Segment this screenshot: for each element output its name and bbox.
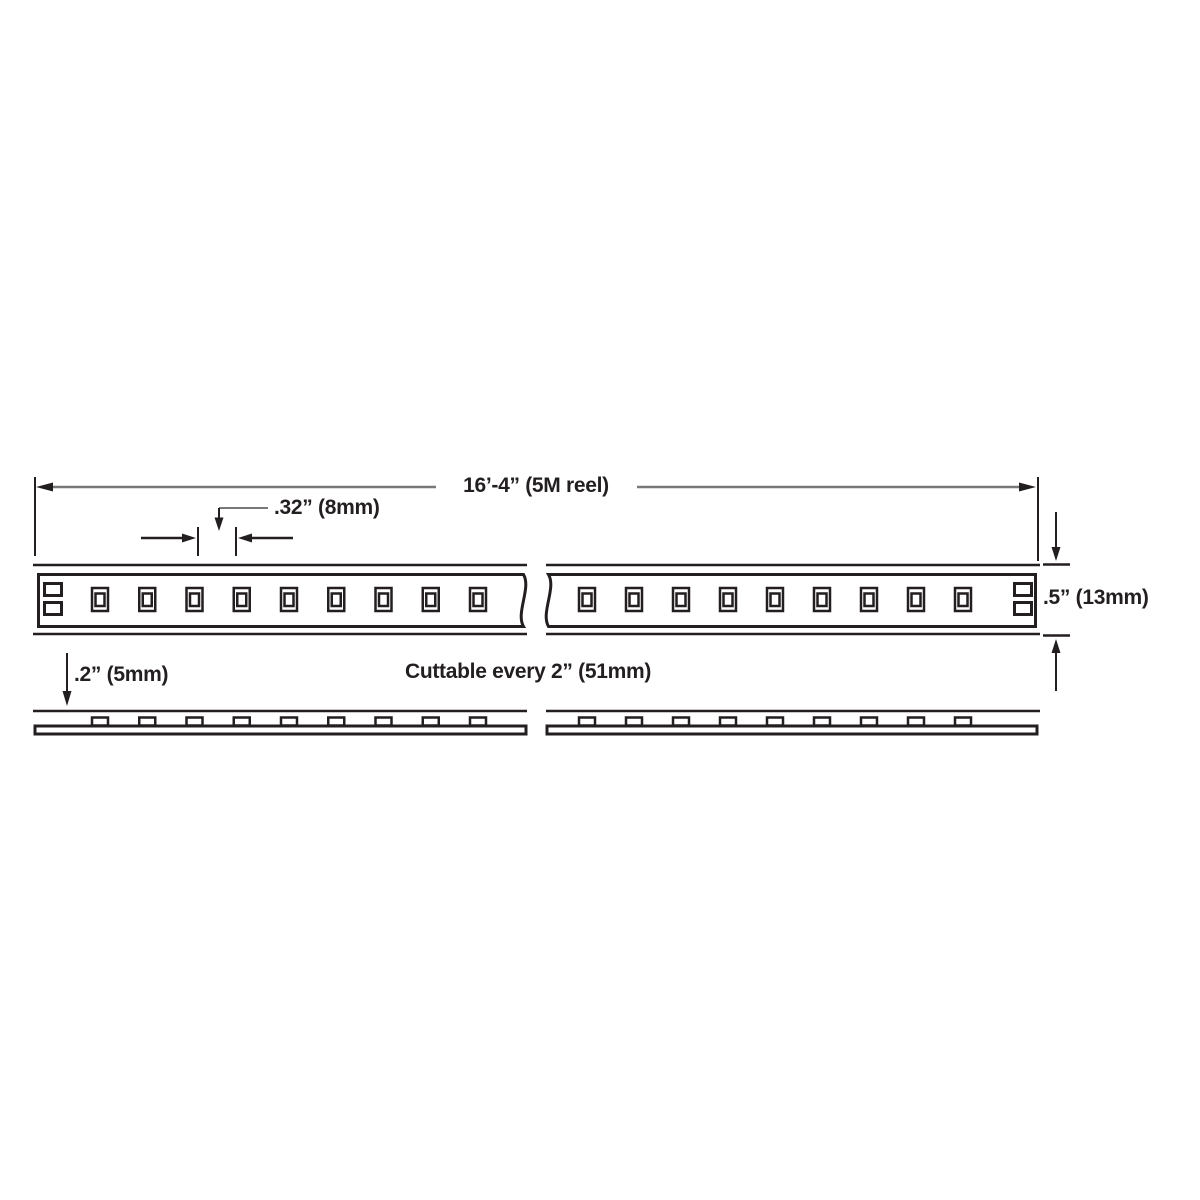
arrowhead-right-icon xyxy=(1019,483,1036,492)
led-bump xyxy=(720,718,736,726)
led-bump xyxy=(423,718,439,726)
arrowhead-left-icon xyxy=(238,534,252,543)
led-bump xyxy=(470,718,486,726)
led-bump xyxy=(187,718,203,726)
strip-body-segment2 xyxy=(546,575,1035,627)
strip-top-view xyxy=(33,565,1040,634)
led-bump xyxy=(908,718,924,726)
led-bump xyxy=(673,718,689,726)
led-bump xyxy=(281,718,297,726)
led-bump xyxy=(626,718,642,726)
led-bump xyxy=(955,718,971,726)
strip-side-view xyxy=(33,711,1040,734)
arrowhead-down-icon xyxy=(215,518,224,532)
arrowhead-down-icon xyxy=(63,691,72,706)
strip-width-label: .5” (13mm) xyxy=(1043,587,1149,609)
led-bump xyxy=(139,718,155,726)
led-bump xyxy=(234,718,250,726)
side-body-segment1 xyxy=(35,726,526,734)
led-bump xyxy=(814,718,830,726)
led-bump xyxy=(767,718,783,726)
led-bump xyxy=(328,718,344,726)
reel-length-label: 16’-4” (5M reel) xyxy=(463,475,609,497)
arrowhead-up-icon xyxy=(1052,639,1061,653)
led-pitch-label: .32” (8mm) xyxy=(274,497,380,519)
led-pitch-callout xyxy=(141,508,293,556)
arrowhead-left-icon xyxy=(36,483,53,492)
side-led-bumps xyxy=(92,718,971,726)
strip-thickness-label: .2” (5mm) xyxy=(74,664,168,686)
arrowhead-down-icon xyxy=(1052,547,1061,561)
thickness-annotation xyxy=(63,653,72,706)
cuttable-note-label: Cuttable every 2” (51mm) xyxy=(405,661,651,683)
side-body-segment2 xyxy=(547,726,1037,734)
led-bump xyxy=(579,718,595,726)
arrowhead-right-icon xyxy=(182,534,196,543)
led-bump xyxy=(861,718,877,726)
led-bump xyxy=(92,718,108,726)
diagram-canvas: 16’-4” (5M reel) .32” (8mm) .5” (13mm) .… xyxy=(0,0,1200,1200)
led-bump xyxy=(376,718,392,726)
led-strip-diagram xyxy=(0,0,1200,1200)
